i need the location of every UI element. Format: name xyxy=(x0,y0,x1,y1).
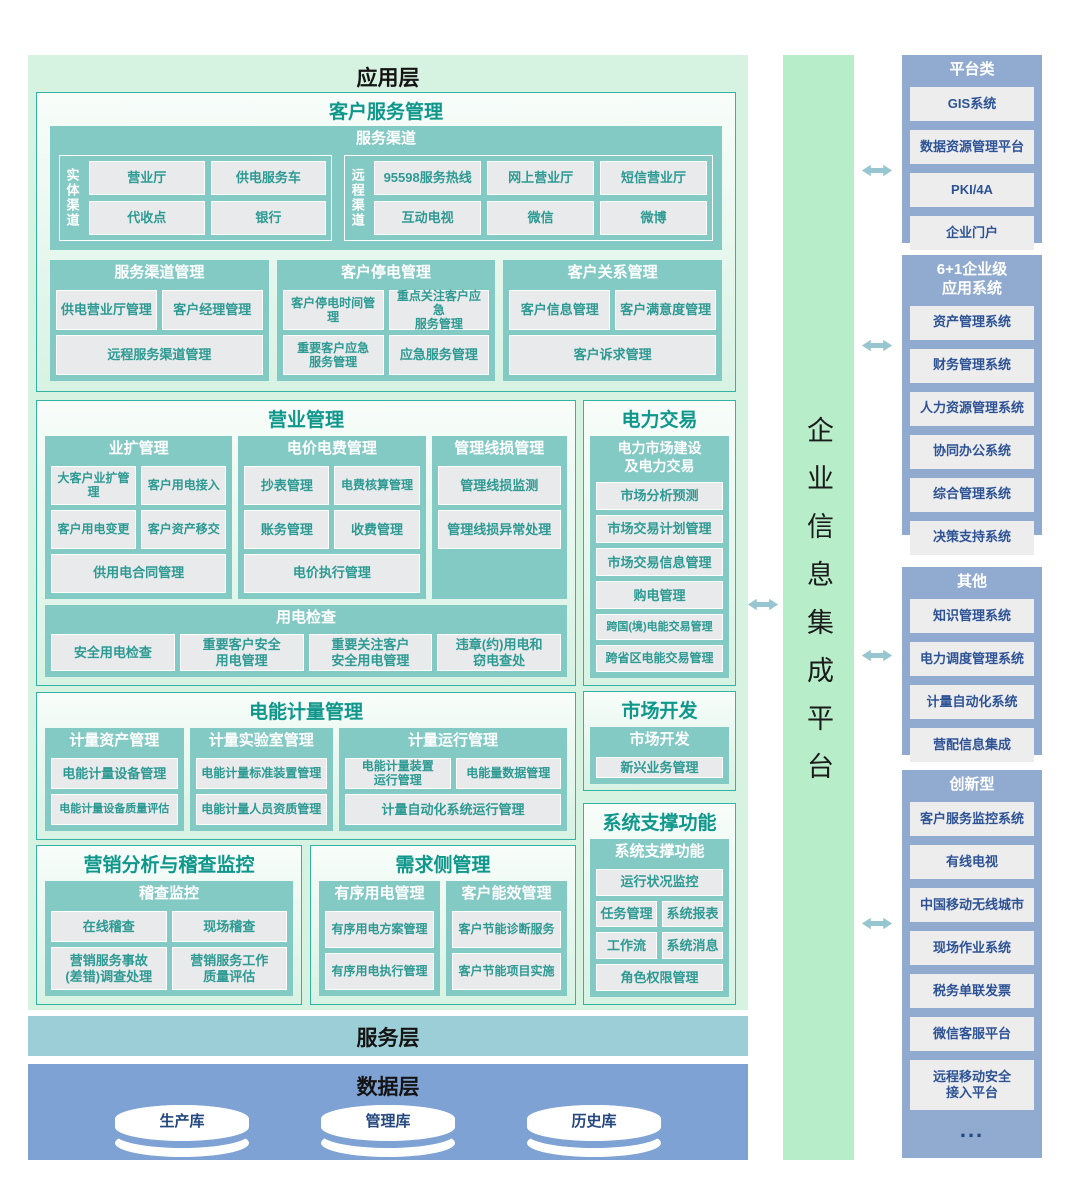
function-item: 购电管理 xyxy=(596,581,723,609)
remote-channel-group: 远程渠道 95598服务热线 网上营业厅 短信营业厅 互动电视 微信 微博 xyxy=(344,155,713,241)
channel-item: 供电服务车 xyxy=(211,161,327,195)
function-item: 管理线损异常处理 xyxy=(438,510,561,549)
system-item: 客户服务监控系统 xyxy=(910,802,1034,836)
block-header: 计量资产管理 xyxy=(45,728,184,752)
system-item: 微信客服平台 xyxy=(910,1017,1034,1051)
right-section-enterprise-apps: 6+1企业级 应用系统 资产管理系统 财务管理系统 人力资源管理系统 协同办公系… xyxy=(902,255,1042,535)
section-metering-mgmt: 电能计量管理 计量资产管理 电能计量设备管理 电能计量设备质量评估 计量实验室管… xyxy=(36,692,576,840)
function-item: 有序用电方案管理 xyxy=(325,911,434,948)
function-item: 管理线损监测 xyxy=(438,466,561,505)
system-item: 财务管理系统 xyxy=(910,349,1034,383)
function-item: 应急服务管理 xyxy=(389,335,490,375)
block-header: 有序用电管理 xyxy=(319,881,440,905)
function-item: 电能计量设备管理 xyxy=(51,758,178,789)
block-header: 稽查监控 xyxy=(45,881,293,905)
database-label: 管理库 xyxy=(365,1112,410,1130)
right-section-header: 6+1企业级 应用系统 xyxy=(910,255,1034,306)
function-item: 客户经理管理 xyxy=(162,290,263,330)
section-power-trading: 电力交易 电力市场建设 及电力交易 市场分析预测 市场交易计划管理 市场交易信息… xyxy=(583,400,736,686)
block-header: 电力市场建设 及电力交易 xyxy=(590,436,729,476)
channel-item: 微博 xyxy=(600,201,707,235)
system-item: 综合管理系统 xyxy=(910,478,1034,512)
block-outage-mgmt: 客户停电管理 客户停电时间管理 重点关注客户应急 服务管理 重要客户应急 服务管… xyxy=(277,260,496,381)
more-ellipsis: ... xyxy=(910,1123,1034,1137)
section-system-support: 系统支撑功能 系统支撑功能 运行状况监控 任务管理 系统报表 工作流 系统消息 … xyxy=(583,803,736,1005)
function-item: 违章(约)用电和 窃电查处 xyxy=(437,634,561,671)
system-item: 营配信息集成 xyxy=(910,728,1034,762)
function-item: 供电营业厅管理 xyxy=(56,290,157,330)
section-title: 营销分析与稽查监控 xyxy=(37,846,301,879)
block-header: 用电检查 xyxy=(45,605,567,629)
channel-item: 银行 xyxy=(211,201,327,235)
system-item: 远程移动安全 接入平台 xyxy=(910,1060,1034,1110)
right-section-header: 平台类 xyxy=(910,55,1034,87)
section-market-dev: 市场开发 市场开发 新兴业务管理 xyxy=(583,691,736,791)
function-item: 营销服务事故 (差错)调查处理 xyxy=(51,947,167,990)
physical-channel-label: 实体渠道 xyxy=(60,156,84,240)
function-item: 现场稽查 xyxy=(172,911,288,943)
block-tariff-mgmt: 电价电费管理 抄表管理 电费核算管理 账务管理 收费管理 电价执行管理 xyxy=(238,436,425,599)
block-expansion-mgmt: 业扩管理 大客户业扩管理 客户用电接入 客户用电变更 客户资产移交 供用电合同管… xyxy=(45,436,232,599)
function-item: 客户诉求管理 xyxy=(509,335,716,375)
function-item: 客户停电时间管理 xyxy=(283,290,384,330)
function-item: 重要关注客户 安全用电管理 xyxy=(309,634,433,671)
block-header: 管理线损管理 xyxy=(432,436,567,460)
function-item: 计量自动化系统运行管理 xyxy=(345,794,561,825)
database-cylinder-icon: 生产库 xyxy=(113,1103,251,1159)
system-item: 税务单联发票 xyxy=(910,974,1034,1008)
section-title: 市场开发 xyxy=(584,692,735,725)
function-item: 重要客户安全 用电管理 xyxy=(180,634,304,671)
bidirectional-arrow-icon xyxy=(861,163,893,178)
function-item: 有序用电执行管理 xyxy=(325,953,434,990)
bidirectional-arrow-icon xyxy=(861,338,893,353)
function-item: 市场交易计划管理 xyxy=(596,515,723,543)
block-header: 客户停电管理 xyxy=(277,260,496,284)
function-item: 任务管理 xyxy=(596,901,657,928)
function-item: 供用电合同管理 xyxy=(51,554,226,593)
block-market-dev: 市场开发 新兴业务管理 xyxy=(590,727,729,784)
right-section-others: 其他 知识管理系统 电力调度管理系统 计量自动化系统 营配信息集成 xyxy=(902,567,1042,755)
bidirectional-arrow-icon xyxy=(861,916,893,931)
function-item: 系统报表 xyxy=(662,901,723,928)
section-business-mgmt: 营业管理 业扩管理 大客户业扩管理 客户用电接入 客户用电变更 客户资产移交 供… xyxy=(36,400,576,686)
function-item: 重点关注客户应急 服务管理 xyxy=(389,290,490,330)
data-layer-title: 数据层 xyxy=(28,1064,748,1101)
section-title: 系统支撑功能 xyxy=(584,804,735,837)
function-item: 账务管理 xyxy=(244,510,329,549)
system-item: 协同办公系统 xyxy=(910,435,1034,469)
system-item: 人力资源管理系统 xyxy=(910,392,1034,426)
block-customer-efficiency: 客户能效管理 客户节能诊断服务 客户节能项目实施 xyxy=(446,881,567,996)
system-item: GIS系统 xyxy=(910,87,1034,121)
section-title: 客户服务管理 xyxy=(37,93,735,126)
function-item: 市场分析预测 xyxy=(596,482,723,510)
function-item: 电价执行管理 xyxy=(244,554,419,593)
function-item: 客户信息管理 xyxy=(509,290,610,330)
block-power-trading: 电力市场建设 及电力交易 市场分析预测 市场交易计划管理 市场交易信息管理 购电… xyxy=(590,436,729,678)
system-item: 计量自动化系统 xyxy=(910,685,1034,719)
channel-item: 互动电视 xyxy=(374,201,481,235)
block-crm: 客户关系管理 客户信息管理 客户满意度管理 客户诉求管理 xyxy=(503,260,722,381)
function-item: 客户满意度管理 xyxy=(615,290,716,330)
integration-platform-title: 企业信息集成平台 xyxy=(799,416,838,800)
system-item: 决策支持系统 xyxy=(910,521,1034,555)
channel-item: 95598服务热线 xyxy=(374,161,481,195)
block-audit-monitor: 稽查监控 在线稽查 现场稽查 营销服务事故 (差错)调查处理 营销服务工作 质量… xyxy=(45,881,293,996)
right-section-header: 其他 xyxy=(910,567,1034,599)
function-item: 新兴业务管理 xyxy=(596,757,723,778)
function-item: 电能计量设备质量评估 xyxy=(51,794,178,825)
service-layer-title: 服务层 xyxy=(28,1016,748,1052)
system-item: 企业门户 xyxy=(910,216,1034,250)
right-section-header: 创新型 xyxy=(910,770,1034,802)
database-label: 生产库 xyxy=(159,1112,204,1130)
block-metering-lab: 计量实验室管理 电能计量标准装置管理 电能计量人员资质管理 xyxy=(190,728,333,831)
integration-platform-bar: 企业信息集成平台 xyxy=(783,55,854,1160)
section-title: 需求侧管理 xyxy=(311,846,575,879)
function-item: 电费核算管理 xyxy=(334,466,419,505)
right-section-innovative: 创新型 客户服务监控系统 有线电视 中国移动无线城市 现场作业系统 税务单联发票… xyxy=(902,770,1042,1158)
block-header: 客户关系管理 xyxy=(503,260,722,284)
function-item: 市场交易信息管理 xyxy=(596,548,723,576)
block-header: 业扩管理 xyxy=(45,436,232,460)
function-item: 电能计量标准装置管理 xyxy=(196,758,327,789)
section-marketing-audit: 营销分析与稽查监控 稽查监控 在线稽查 现场稽查 营销服务事故 (差错)调查处理… xyxy=(36,845,302,1005)
section-customer-service: 客户服务管理 服务渠道 实体渠道 营业厅 供电服务车 代收点 银行 xyxy=(36,92,736,392)
system-item: 电力调度管理系统 xyxy=(910,642,1034,676)
section-demand-side: 需求侧管理 有序用电管理 有序用电方案管理 有序用电执行管理 客户能效管理 客户… xyxy=(310,845,576,1005)
block-header: 计量实验室管理 xyxy=(190,728,333,752)
function-item: 客户用电接入 xyxy=(141,466,226,505)
function-item: 工作流 xyxy=(596,932,657,959)
function-item: 远程服务渠道管理 xyxy=(56,335,263,375)
block-header: 客户能效管理 xyxy=(446,881,567,905)
function-item: 抄表管理 xyxy=(244,466,329,505)
function-item: 运行状况监控 xyxy=(596,869,723,896)
channel-item: 网上营业厅 xyxy=(487,161,594,195)
remote-channel-label: 远程渠道 xyxy=(345,156,369,240)
database-cylinder-icon: 历史库 xyxy=(525,1103,663,1159)
block-channel-mgmt: 服务渠道管理 供电营业厅管理 客户经理管理 远程服务渠道管理 xyxy=(50,260,269,381)
system-item: 中国移动无线城市 xyxy=(910,888,1034,922)
block-line-loss-mgmt: 管理线损管理 管理线损监测 管理线损异常处理 xyxy=(432,436,567,599)
function-item: 客户资产移交 xyxy=(141,510,226,549)
block-header: 服务渠道管理 xyxy=(50,260,269,284)
function-item: 角色权限管理 xyxy=(596,964,723,991)
channel-item: 营业厅 xyxy=(89,161,205,195)
system-item: PKI/4A xyxy=(910,173,1034,207)
channel-item: 短信营业厅 xyxy=(600,161,707,195)
function-item: 电能计量人员资质管理 xyxy=(196,794,327,825)
block-metering-asset: 计量资产管理 电能计量设备管理 电能计量设备质量评估 xyxy=(45,728,184,831)
function-item: 跨省区电能交易管理 xyxy=(596,645,723,672)
block-system-support: 系统支撑功能 运行状况监控 任务管理 系统报表 工作流 系统消息 角色权限管理 xyxy=(590,839,729,997)
function-item: 跨国(境)电能交易管理 xyxy=(596,614,723,640)
function-item: 电能量数据管理 xyxy=(456,758,562,789)
function-item: 在线稽查 xyxy=(51,911,167,943)
system-item: 资产管理系统 xyxy=(910,306,1034,340)
data-layer: 数据层 生产库 管理库 历史库 xyxy=(28,1064,748,1160)
block-orderly-power: 有序用电管理 有序用电方案管理 有序用电执行管理 xyxy=(319,881,440,996)
block-service-channels: 服务渠道 实体渠道 营业厅 供电服务车 代收点 银行 远程渠道 xyxy=(50,126,722,250)
bidirectional-arrow-icon xyxy=(747,597,779,612)
database-label: 历史库 xyxy=(571,1112,616,1130)
application-layer: 应用层 客户服务管理 服务渠道 实体渠道 营业厅 供电服务车 代收点 银行 xyxy=(28,55,748,1010)
application-layer-title: 应用层 xyxy=(28,55,748,92)
section-title: 电能计量管理 xyxy=(37,693,575,726)
block-header: 市场开发 xyxy=(590,727,729,751)
system-item: 有线电视 xyxy=(910,845,1034,879)
section-title: 电力交易 xyxy=(584,401,735,434)
physical-channel-group: 实体渠道 营业厅 供电服务车 代收点 银行 xyxy=(59,155,332,241)
function-item: 客户节能诊断服务 xyxy=(452,911,561,948)
system-item: 知识管理系统 xyxy=(910,599,1034,633)
channel-item: 代收点 xyxy=(89,201,205,235)
block-metering-operation: 计量运行管理 电能计量装置 运行管理 电能量数据管理 计量自动化系统运行管理 xyxy=(339,728,567,831)
right-section-platform-class: 平台类 GIS系统 数据资源管理平台 PKI/4A 企业门户 xyxy=(902,55,1042,243)
function-item: 重要客户应急 服务管理 xyxy=(283,335,384,375)
block-header: 系统支撑功能 xyxy=(590,839,729,863)
block-header: 电价电费管理 xyxy=(238,436,425,460)
block-header: 服务渠道 xyxy=(50,126,722,150)
function-item: 客户节能项目实施 xyxy=(452,953,561,990)
channel-item: 微信 xyxy=(487,201,594,235)
function-item: 大客户业扩管理 xyxy=(51,466,136,505)
system-item: 现场作业系统 xyxy=(910,931,1034,965)
function-item: 系统消息 xyxy=(662,932,723,959)
service-layer: 服务层 xyxy=(28,1016,748,1056)
block-header: 计量运行管理 xyxy=(339,728,567,752)
function-item: 安全用电检查 xyxy=(51,634,175,671)
database-cylinder-icon: 管理库 xyxy=(319,1103,457,1159)
section-title: 营业管理 xyxy=(37,401,575,434)
function-item: 电能计量装置 运行管理 xyxy=(345,758,450,789)
system-item: 数据资源管理平台 xyxy=(910,130,1034,164)
bidirectional-arrow-icon xyxy=(861,648,893,663)
function-item: 收费管理 xyxy=(334,510,419,549)
function-item: 客户用电变更 xyxy=(51,510,136,549)
function-item: 营销服务工作 质量评估 xyxy=(172,947,288,990)
block-power-inspection: 用电检查 安全用电检查 重要客户安全 用电管理 重要关注客户 安全用电管理 违章… xyxy=(45,605,567,677)
